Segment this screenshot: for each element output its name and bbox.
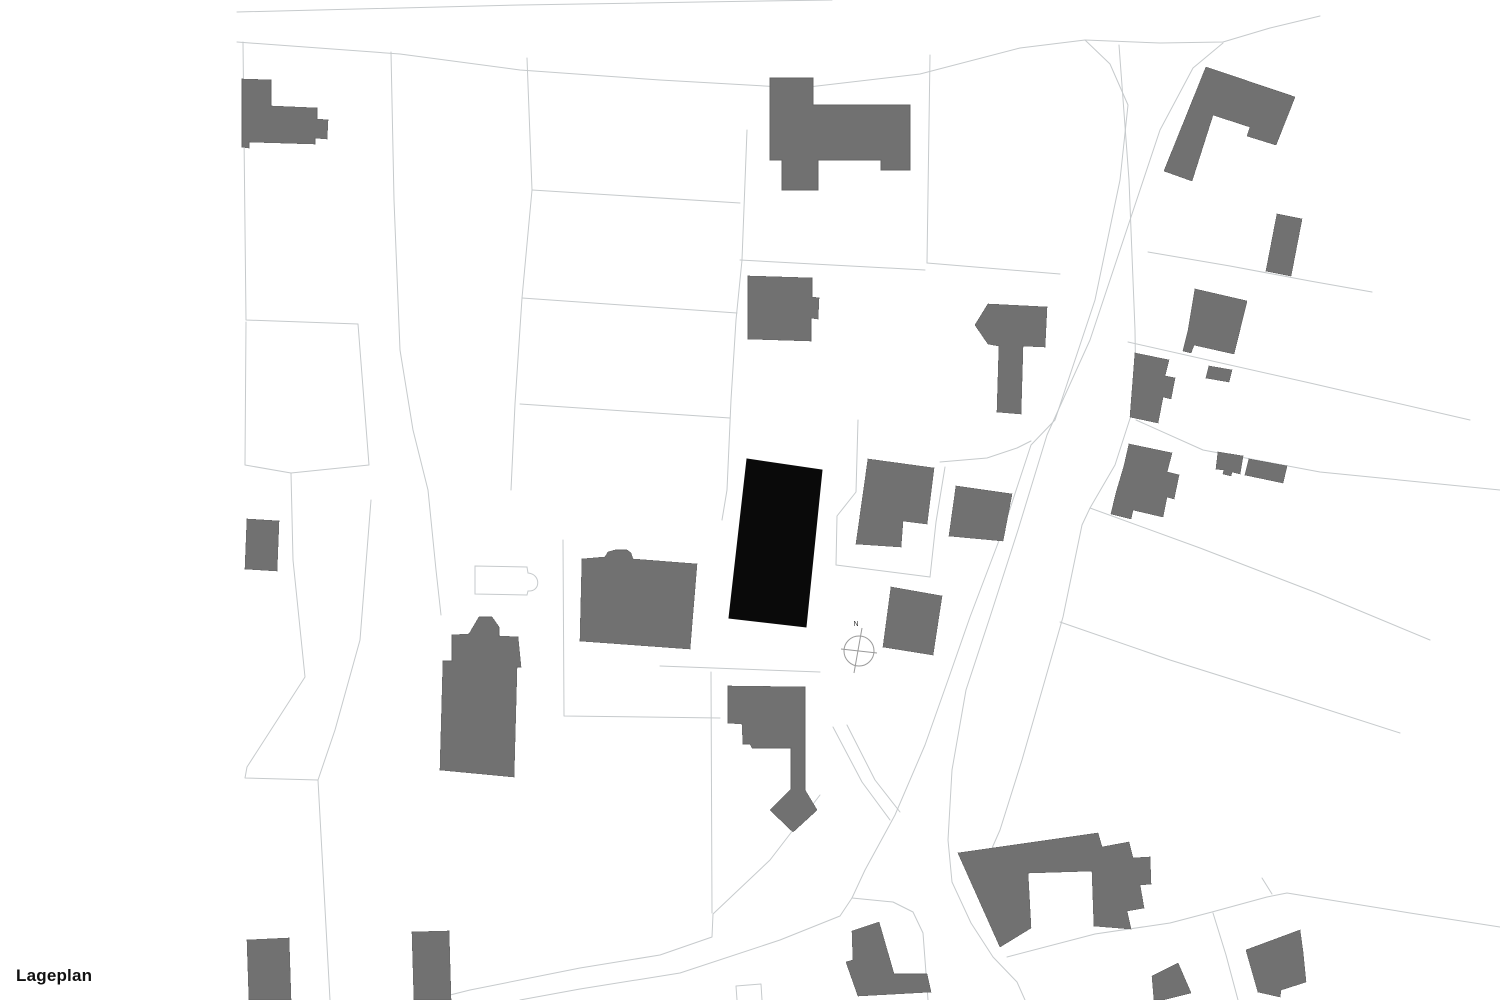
parcel-line-site-curve [940, 441, 1031, 462]
existing-building-b19 [1216, 452, 1243, 476]
parcel-line-row-668 [660, 666, 820, 672]
compass-needle-ew [841, 649, 877, 653]
parcel-line-row-410 [520, 404, 730, 418]
existing-building-b9 [975, 304, 1047, 414]
existing-building-b21 [846, 922, 931, 996]
buildings-layer [242, 67, 1306, 1000]
existing-building-b25 [1246, 930, 1306, 997]
parcel-line-sw-nw-edge [430, 795, 820, 1000]
compass-north-label: N [853, 621, 858, 628]
parcel-line-lane-a [833, 727, 890, 820]
courtyard-outline [475, 566, 538, 595]
existing-building-b14 [245, 519, 279, 571]
existing-building-b23 [247, 938, 291, 1000]
existing-building-b4 [1266, 214, 1302, 276]
compass-icon: N [841, 621, 877, 673]
existing-building-b26 [1152, 963, 1191, 1000]
existing-building-b16 [949, 486, 1012, 541]
parcel-line-east-parallel [978, 45, 1136, 880]
existing-building-b7 [1130, 353, 1175, 423]
parcel-line-col-740 [722, 130, 747, 520]
parcel-line-bottom-plot [736, 984, 762, 1000]
parcel-line-row-300 [522, 298, 737, 313]
parcel-line-se-branch [1213, 913, 1238, 1000]
existing-building-b20 [1245, 459, 1287, 483]
existing-building-b1 [242, 79, 328, 148]
existing-building-b15 [856, 459, 934, 547]
parcel-line-r6 [1060, 622, 1400, 733]
existing-building-b13 [580, 550, 697, 649]
existing-building-b2 [770, 78, 910, 190]
parcel-line-street-top-upper [237, 0, 832, 12]
existing-building-b22 [412, 931, 451, 1000]
project-building [729, 459, 822, 627]
parcel-line-lane-390 [391, 52, 441, 615]
parcel-line-r1 [1148, 252, 1372, 292]
existing-building-b3 [1164, 67, 1295, 181]
existing-building-b11 [728, 686, 817, 832]
plan-caption: Lageplan [16, 966, 92, 986]
parcel-line-left-wedge [318, 500, 371, 780]
parcel-line-row-270e [927, 263, 1060, 274]
existing-building-b12 [440, 617, 521, 777]
site-plan-map: N [0, 0, 1500, 1000]
existing-building-b8 [748, 276, 819, 341]
parcel-line-r2 [1128, 342, 1470, 420]
parcel-line-se-connector [1262, 878, 1272, 894]
parcel-line-sw-se-edge [520, 898, 852, 1000]
parcel-line-row-265 [740, 260, 925, 270]
parcel-line-col-930 [927, 55, 930, 263]
existing-building-b6 [1206, 366, 1232, 382]
parcel-line-r3 [1136, 420, 1500, 490]
parcel-line-r5 [1090, 508, 1430, 640]
parcel-line-col-711 [711, 672, 712, 913]
outlined-shapes-layer [475, 566, 538, 595]
parcel-line-row-190 [532, 190, 740, 203]
parcel-line-lane-525 [511, 58, 532, 490]
existing-building-b5 [1183, 289, 1247, 354]
existing-building-b17 [883, 587, 942, 655]
site-plan-page: N Lageplan [0, 0, 1500, 1000]
existing-building-b18 [1111, 444, 1179, 519]
parcel-line-street-ne-branch [1085, 16, 1320, 43]
